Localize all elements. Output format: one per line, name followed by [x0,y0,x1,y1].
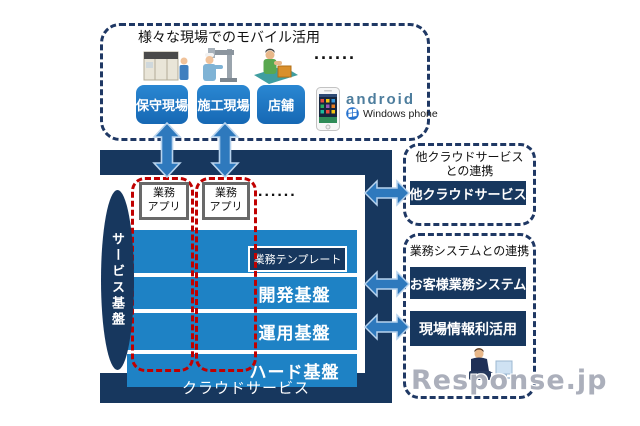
windows-phone-label: Windows phone [363,108,438,120]
site-label: 保守現場 [136,95,188,114]
other-cloud-service-box: 他クラウドサービス [410,181,526,205]
cloud-link-title: 他クラウドサービス との連携 [406,151,533,179]
service-base-label: サービス基盤 [108,232,127,328]
more-sites-dots: ...... [314,48,356,58]
site-label: 店舗 [268,95,294,114]
left-right-arrow-icon [364,313,410,341]
business-app-chip: 業務 アプリ [139,182,189,220]
cloud-service-label: クラウドサービス [100,377,392,398]
service-base-ellipse: サービス基盤 [101,190,134,370]
site-box-store: 店舗 [257,85,305,124]
windows-flag-icon [346,107,359,120]
smartphone-icon [316,87,340,131]
up-down-arrow-icon [152,122,182,178]
construction-site-icon [197,44,243,84]
android-logo: android [346,91,415,108]
business-template-label: 業務テンプレート [254,251,342,267]
system-link-title: 業務システムとの連携 [406,245,533,259]
left-right-arrow-icon [364,270,410,298]
store-icon [250,44,300,84]
response-jp-watermark: Response.jp [411,365,608,396]
business-template-box: 業務テンプレート [248,246,347,272]
field-info-box: 現場情報利活用 [410,311,526,346]
site-box-construction: 施工現場 [197,85,250,124]
diagram-canvas: 様々な現場でのモバイル活用 ...... 保守現場 施工現場 店舗 [0,0,640,426]
business-app-chip: 業務 アプリ [202,182,250,220]
site-box-maintenance: 保守現場 [136,85,188,124]
windows-phone-logo: Windows phone [346,107,438,120]
site-label: 施工現場 [197,95,249,114]
more-apps-dots: ...... [258,187,297,197]
up-down-arrow-icon [210,122,240,178]
left-right-arrow-icon [364,179,410,207]
customer-system-box: お客様業務システム [410,267,526,299]
maintenance-site-icon [142,44,192,84]
